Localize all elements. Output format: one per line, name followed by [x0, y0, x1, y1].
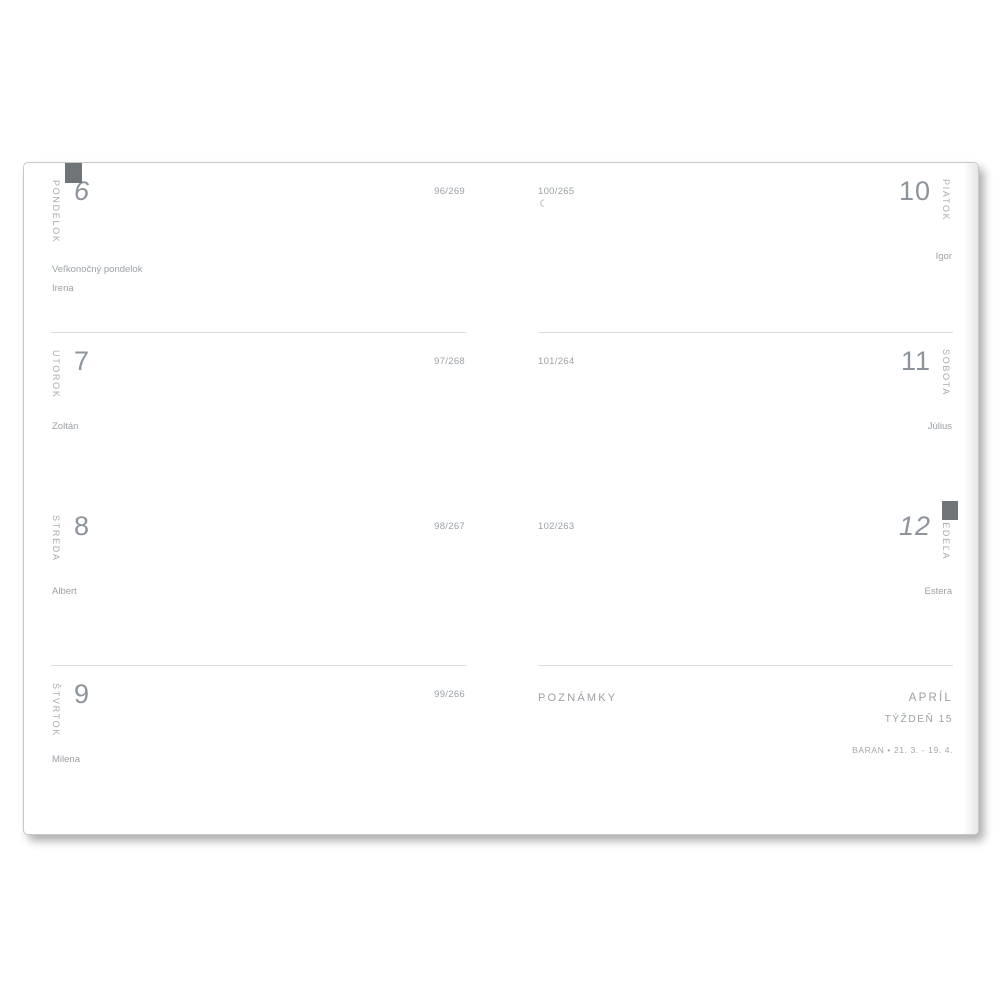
name-day-label: Estera [925, 582, 952, 601]
day-of-year-counter: 97/268 [434, 356, 465, 367]
day-number: 11 [901, 346, 931, 377]
zodiac-range-label: BARAN • 21. 3. - 19. 4. [852, 745, 953, 755]
day-cell-friday: PIATOK 10 100/265 ☾ Igor [538, 163, 953, 329]
month-label: APRÍL [909, 692, 953, 704]
week-number-label: TÝŽDEŇ 15 [885, 714, 953, 725]
day-of-year-counter: 101/264 [538, 356, 574, 367]
day-cell-tuesday: UTOROK 7 97/268 Zoltán [51, 332, 466, 499]
day-name-label: ŠTVRTOK [51, 683, 61, 737]
name-day-label: Irena [52, 279, 142, 298]
planner-page: PONDELOK 6 96/269 Veľkonočný pondelok Ir… [23, 162, 979, 835]
page-edge-shadow [964, 163, 978, 834]
day-cell-sunday: NEDEĽA 12 102/263 Estera [538, 498, 953, 664]
day-entries: Albert [52, 582, 77, 601]
day-number: 8 [74, 511, 90, 542]
day-name-label: STREDA [51, 515, 61, 562]
day-of-year-counter: 102/263 [538, 521, 574, 532]
week-marker-tab-sunday [942, 501, 958, 520]
day-number: 9 [74, 679, 90, 710]
day-of-year-counter: 98/267 [434, 521, 465, 532]
day-entries: Milena [52, 750, 80, 769]
day-of-year-counter: 99/266 [434, 689, 465, 700]
day-name-label: SOBOTA [941, 349, 951, 396]
day-number: 12 [899, 511, 931, 542]
day-name-label: UTOROK [51, 350, 61, 399]
name-day-label: Zoltán [52, 417, 78, 436]
day-cell-thursday: ŠTVRTOK 9 99/266 Milena [51, 665, 466, 832]
week-marker-tab-monday [65, 163, 82, 183]
day-cell-saturday: SOBOTA 11 101/264 Július [538, 332, 953, 499]
day-entries: Veľkonočný pondelok Irena [52, 260, 142, 298]
day-name-label: PONDELOK [51, 180, 61, 244]
name-day-label: Július [928, 417, 952, 436]
day-name-label: NEDEĽA [941, 514, 951, 560]
name-day-label: Albert [52, 582, 77, 601]
day-number: 10 [899, 176, 931, 207]
notes-section: POZNÁMKY APRÍL TÝŽDEŇ 15 BARAN • 21. 3. … [538, 665, 953, 832]
holiday-label: Veľkonočný pondelok [52, 260, 142, 279]
day-entries: Zoltán [52, 417, 78, 436]
day-entries: Igor [936, 247, 952, 266]
notes-heading: POZNÁMKY [538, 692, 617, 704]
day-number: 7 [74, 346, 90, 377]
day-entries: Július [928, 417, 952, 436]
day-of-year-counter: 100/265 [538, 186, 574, 197]
day-cell-monday: PONDELOK 6 96/269 Veľkonočný pondelok Ir… [51, 163, 466, 329]
day-cell-wednesday: STREDA 8 98/267 Albert [51, 498, 466, 664]
day-of-year-counter: 96/269 [434, 186, 465, 197]
name-day-label: Milena [52, 750, 80, 769]
name-day-label: Igor [936, 247, 952, 266]
moon-phase-icon: ☾ [539, 199, 548, 210]
day-name-label: PIATOK [941, 179, 951, 221]
day-entries: Estera [925, 582, 952, 601]
